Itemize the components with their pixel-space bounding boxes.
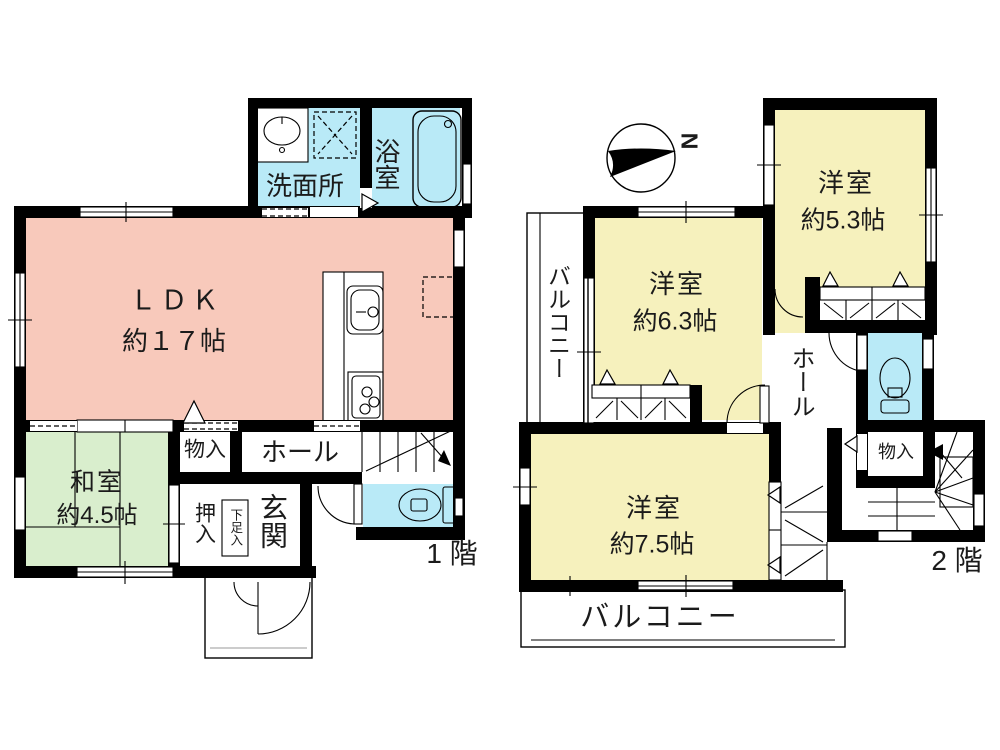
label-room63-size: 約6.3帖 bbox=[633, 310, 718, 335]
label-ldk-name: ＬＤＫ bbox=[130, 288, 223, 315]
label-hall-2f: ホール bbox=[788, 346, 812, 418]
label-washitsu-name: 和室 bbox=[70, 471, 124, 496]
entrance-porch bbox=[205, 570, 312, 658]
label-yokushitsu: 浴室 bbox=[373, 138, 399, 190]
label-room53-name: 洋室 bbox=[818, 170, 874, 196]
label-gesokuire: 下足入 bbox=[229, 508, 242, 546]
label-room75-name: 洋室 bbox=[626, 495, 682, 521]
floor1-stairs bbox=[362, 428, 457, 472]
label-monoire-1f: 物入 bbox=[184, 440, 226, 461]
label-room75-size: 約7.5帖 bbox=[610, 533, 695, 558]
label-room53-size: 約5.3帖 bbox=[801, 209, 886, 234]
kitchen-counter-icon bbox=[323, 272, 383, 422]
label-floor2: 2 階 bbox=[931, 547, 982, 575]
label-oshiire: 押入 bbox=[194, 502, 215, 544]
floorplan-canvas: 洗面所 浴室 ＬＤＫ 約１７帖 和室 約4.5帖 物入 ホール 押入 下足入 玄… bbox=[0, 0, 1000, 750]
label-monoire-2f: 物入 bbox=[878, 443, 914, 461]
label-balcony-side: バルコニー bbox=[546, 265, 569, 380]
compass-icon bbox=[607, 124, 676, 192]
label-washitsu-size: 約4.5帖 bbox=[56, 504, 137, 528]
floorplan-drawing bbox=[0, 0, 1000, 750]
label-ldk-size: 約１７帖 bbox=[122, 328, 226, 354]
closet-75 bbox=[768, 482, 827, 580]
stairs-down-arrow-icon bbox=[438, 450, 451, 466]
vanity-sink-icon bbox=[256, 108, 308, 162]
label-senmenjo: 洗面所 bbox=[266, 173, 344, 199]
label-genkan: 玄関 bbox=[258, 493, 286, 549]
label-room63-name: 洋室 bbox=[649, 271, 705, 297]
label-hall-1f: ホール bbox=[261, 439, 339, 465]
label-balcony-south: バルコニー bbox=[580, 604, 739, 633]
label-compass-north: N bbox=[678, 133, 701, 150]
label-floor1: 1 階 bbox=[426, 540, 477, 568]
